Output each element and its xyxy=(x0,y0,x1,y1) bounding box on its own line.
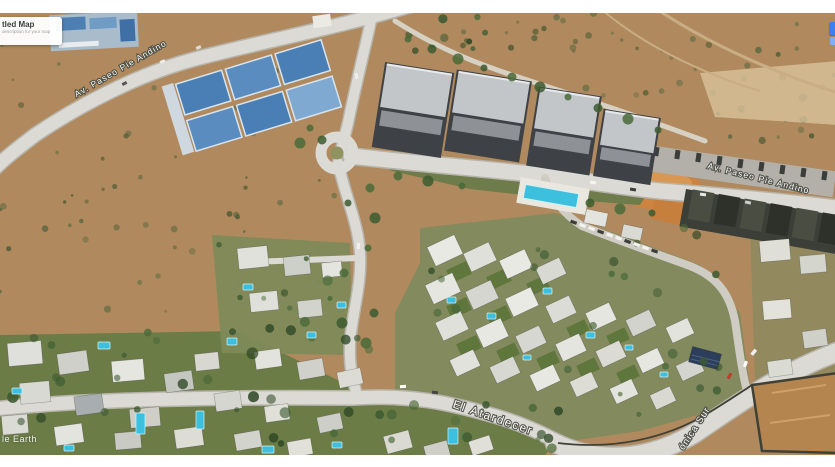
satellite-map[interactable]: Av. Paseo Pie Andino Av. Paseo Pie Andin… xyxy=(0,13,835,455)
map-control-chip[interactable] xyxy=(829,22,835,35)
satellite-imagery: Av. Paseo Pie Andino Av. Paseo Pie Andin… xyxy=(0,13,835,455)
map-subtitle: description for your map xyxy=(2,29,58,35)
small-building xyxy=(312,14,331,28)
map-title: tled Map xyxy=(2,20,58,29)
earth-watermark: le Earth xyxy=(2,434,37,444)
screenshot-root: Av. Paseo Pie Andino Av. Paseo Pie Andin… xyxy=(0,0,835,467)
map-control-chip-2[interactable] xyxy=(830,37,835,45)
school-building xyxy=(49,13,139,51)
map-info-panel[interactable]: tled Map description for your map xyxy=(0,17,62,45)
